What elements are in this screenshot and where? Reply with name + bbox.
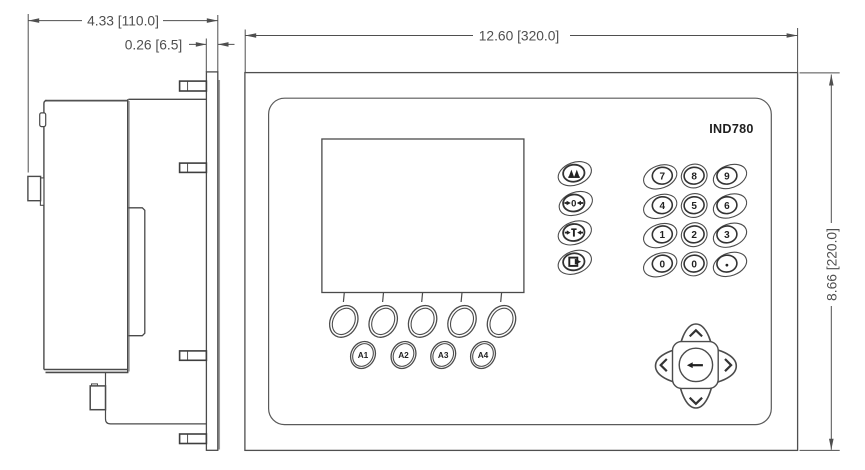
svg-text:0: 0 bbox=[691, 259, 697, 270]
svg-text:4.33 [110.0]: 4.33 [110.0] bbox=[87, 14, 159, 29]
svg-text:12.60 [320.0]: 12.60 [320.0] bbox=[479, 29, 560, 44]
svg-text:8.66 [220.0]: 8.66 [220.0] bbox=[824, 228, 839, 301]
svg-text:5: 5 bbox=[691, 201, 697, 212]
svg-text:IND780: IND780 bbox=[709, 122, 754, 136]
svg-text:4: 4 bbox=[660, 201, 666, 212]
svg-text:6: 6 bbox=[724, 201, 730, 212]
svg-text:0: 0 bbox=[660, 259, 666, 270]
svg-text:7: 7 bbox=[660, 172, 666, 183]
svg-text:A2: A2 bbox=[398, 350, 409, 360]
svg-text:2: 2 bbox=[691, 230, 697, 241]
svg-text:1: 1 bbox=[660, 230, 666, 241]
svg-text:9: 9 bbox=[724, 172, 730, 183]
svg-text:8: 8 bbox=[691, 172, 697, 183]
svg-text:0: 0 bbox=[571, 199, 576, 210]
svg-text:A4: A4 bbox=[478, 350, 489, 360]
svg-text:3: 3 bbox=[724, 230, 730, 241]
svg-text:A1: A1 bbox=[358, 350, 369, 360]
svg-text:0.26 [6.5]: 0.26 [6.5] bbox=[125, 37, 183, 52]
svg-text:A3: A3 bbox=[438, 350, 449, 360]
